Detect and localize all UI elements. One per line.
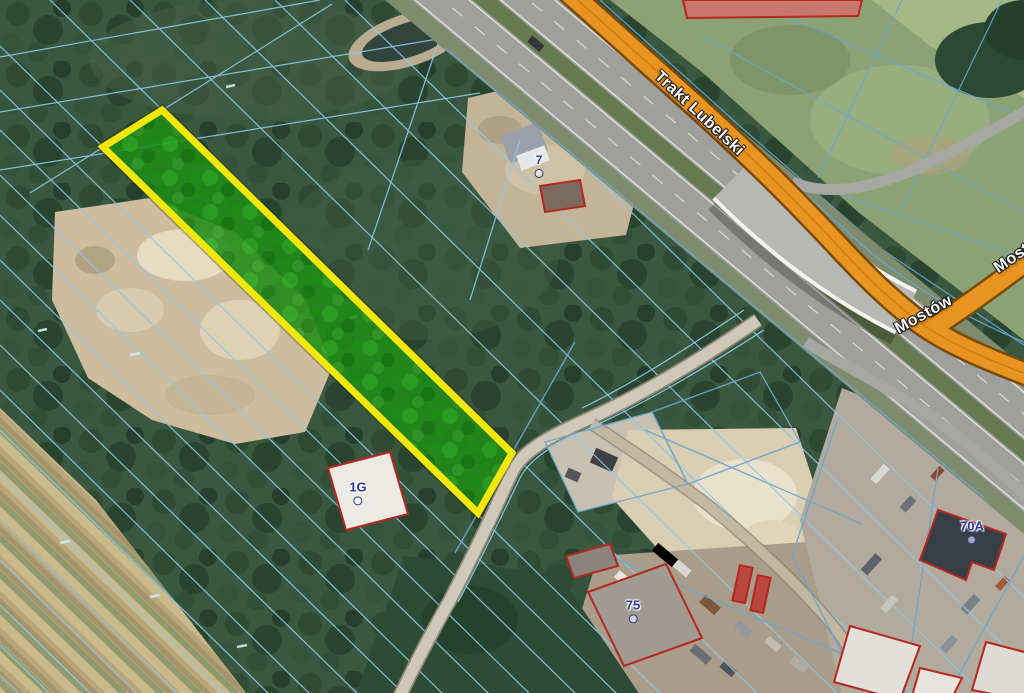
building-marker-icon: [354, 497, 363, 506]
map-svg: [0, 0, 1024, 693]
address-number: 1G: [349, 480, 366, 494]
address-number: 70A: [960, 519, 984, 533]
map-canvas[interactable]: Trakt Lubelski Mostów Mostów 7 1G 75 70A: [0, 0, 1024, 693]
building-marker-icon: [535, 169, 544, 178]
address-label-7: 7: [535, 154, 544, 178]
address-number: 75: [626, 598, 640, 612]
building-top-edge[interactable]: [683, 0, 862, 18]
building-marker-icon: [629, 615, 638, 624]
building-shed-7[interactable]: [540, 180, 585, 212]
address-label-1g: 1G: [349, 480, 366, 505]
address-label-70a: 70A: [960, 519, 984, 544]
address-label-75: 75: [626, 598, 640, 623]
address-number: 7: [536, 154, 543, 167]
building-marker-icon: [967, 536, 976, 545]
